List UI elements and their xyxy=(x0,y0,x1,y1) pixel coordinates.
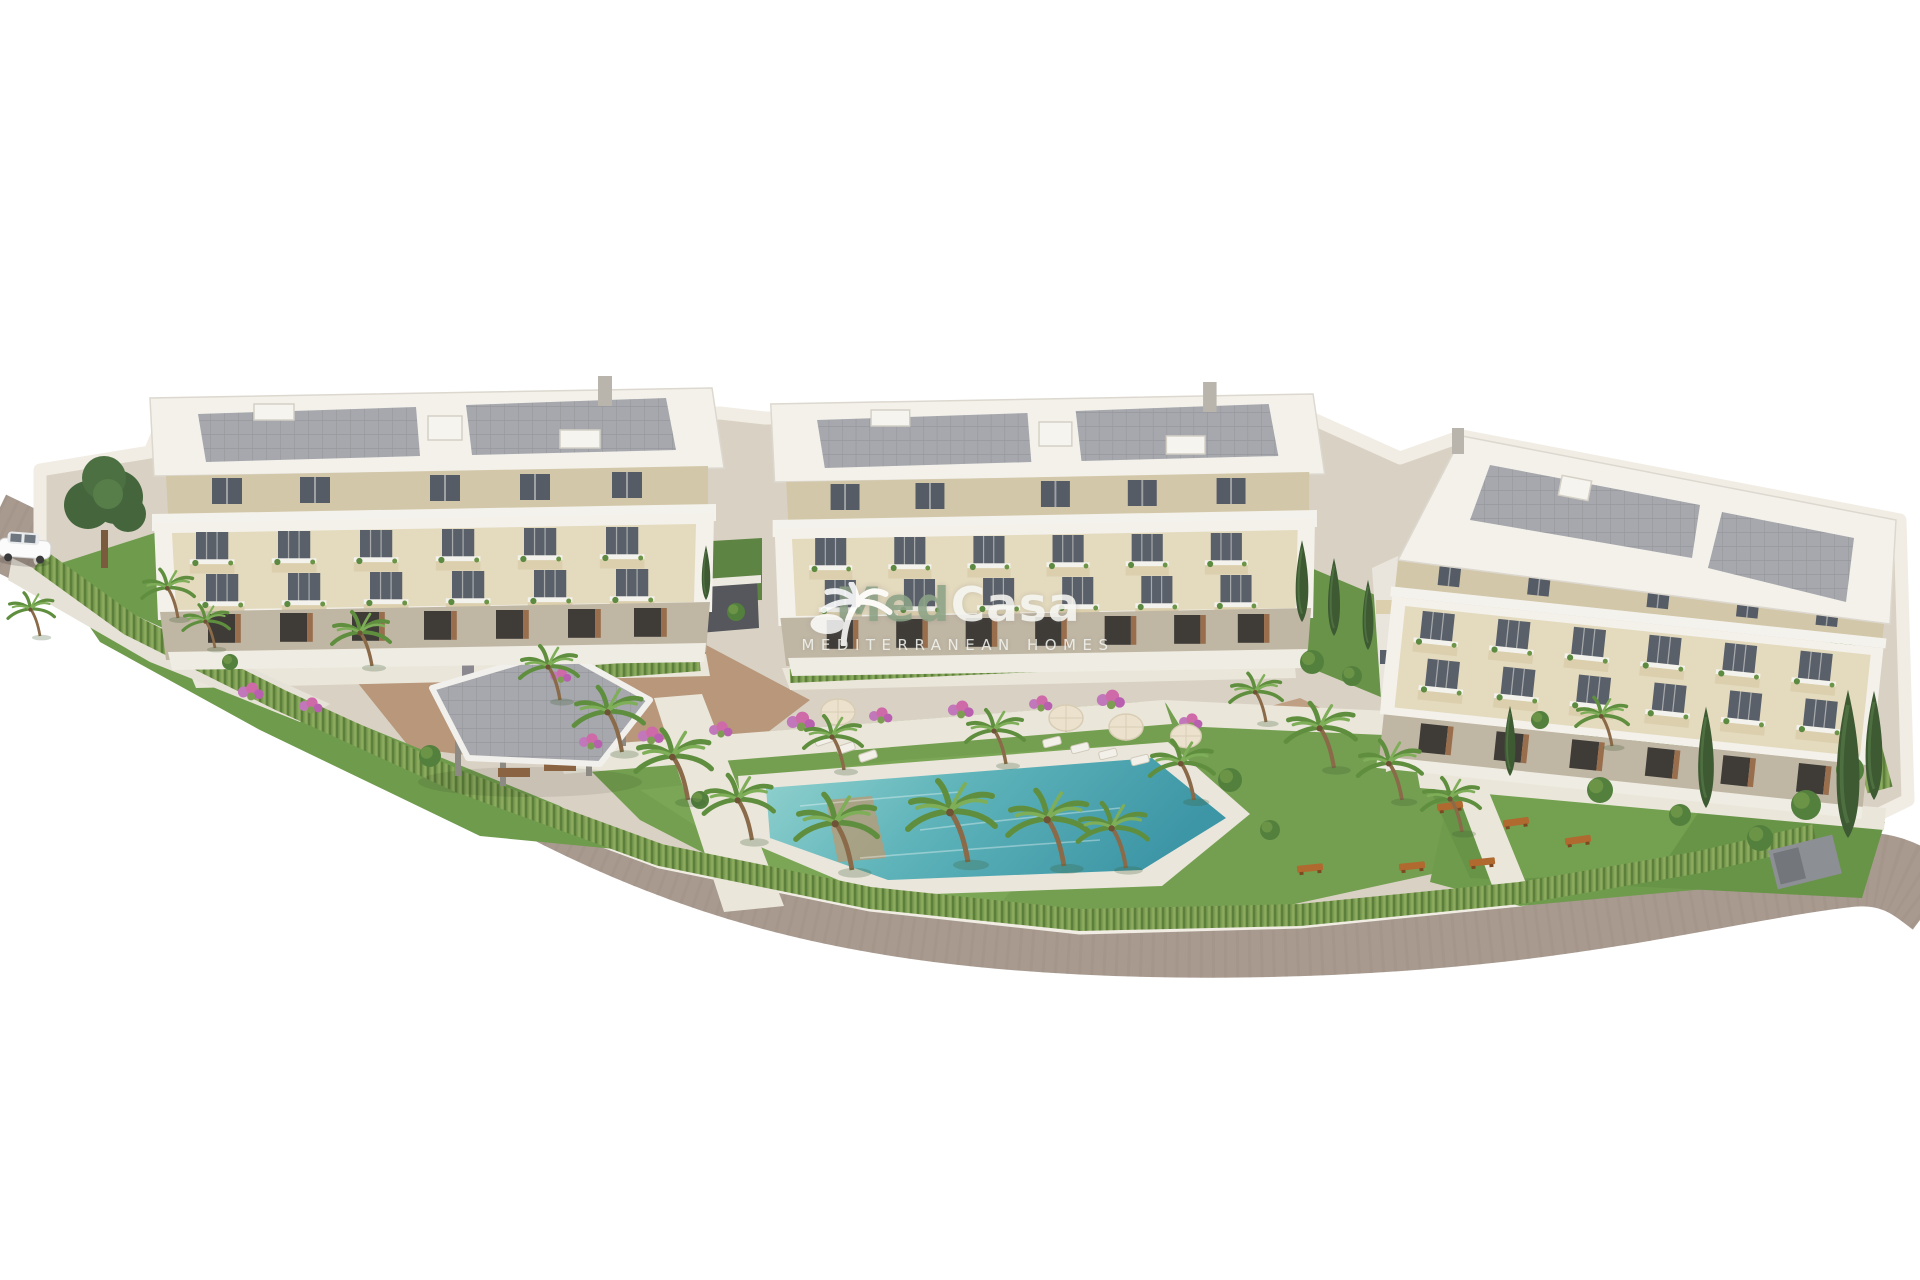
site-plan-render xyxy=(0,0,1920,1280)
right-apartment-building xyxy=(1372,428,1896,819)
chimney xyxy=(598,376,612,406)
left-apartment-building xyxy=(150,376,724,670)
roof-panels xyxy=(198,407,420,462)
chimney xyxy=(1452,428,1464,454)
render-canvas: MedCasa MEDITERRANEAN HOMES xyxy=(0,0,1920,1280)
center-apartment-building xyxy=(771,382,1325,676)
